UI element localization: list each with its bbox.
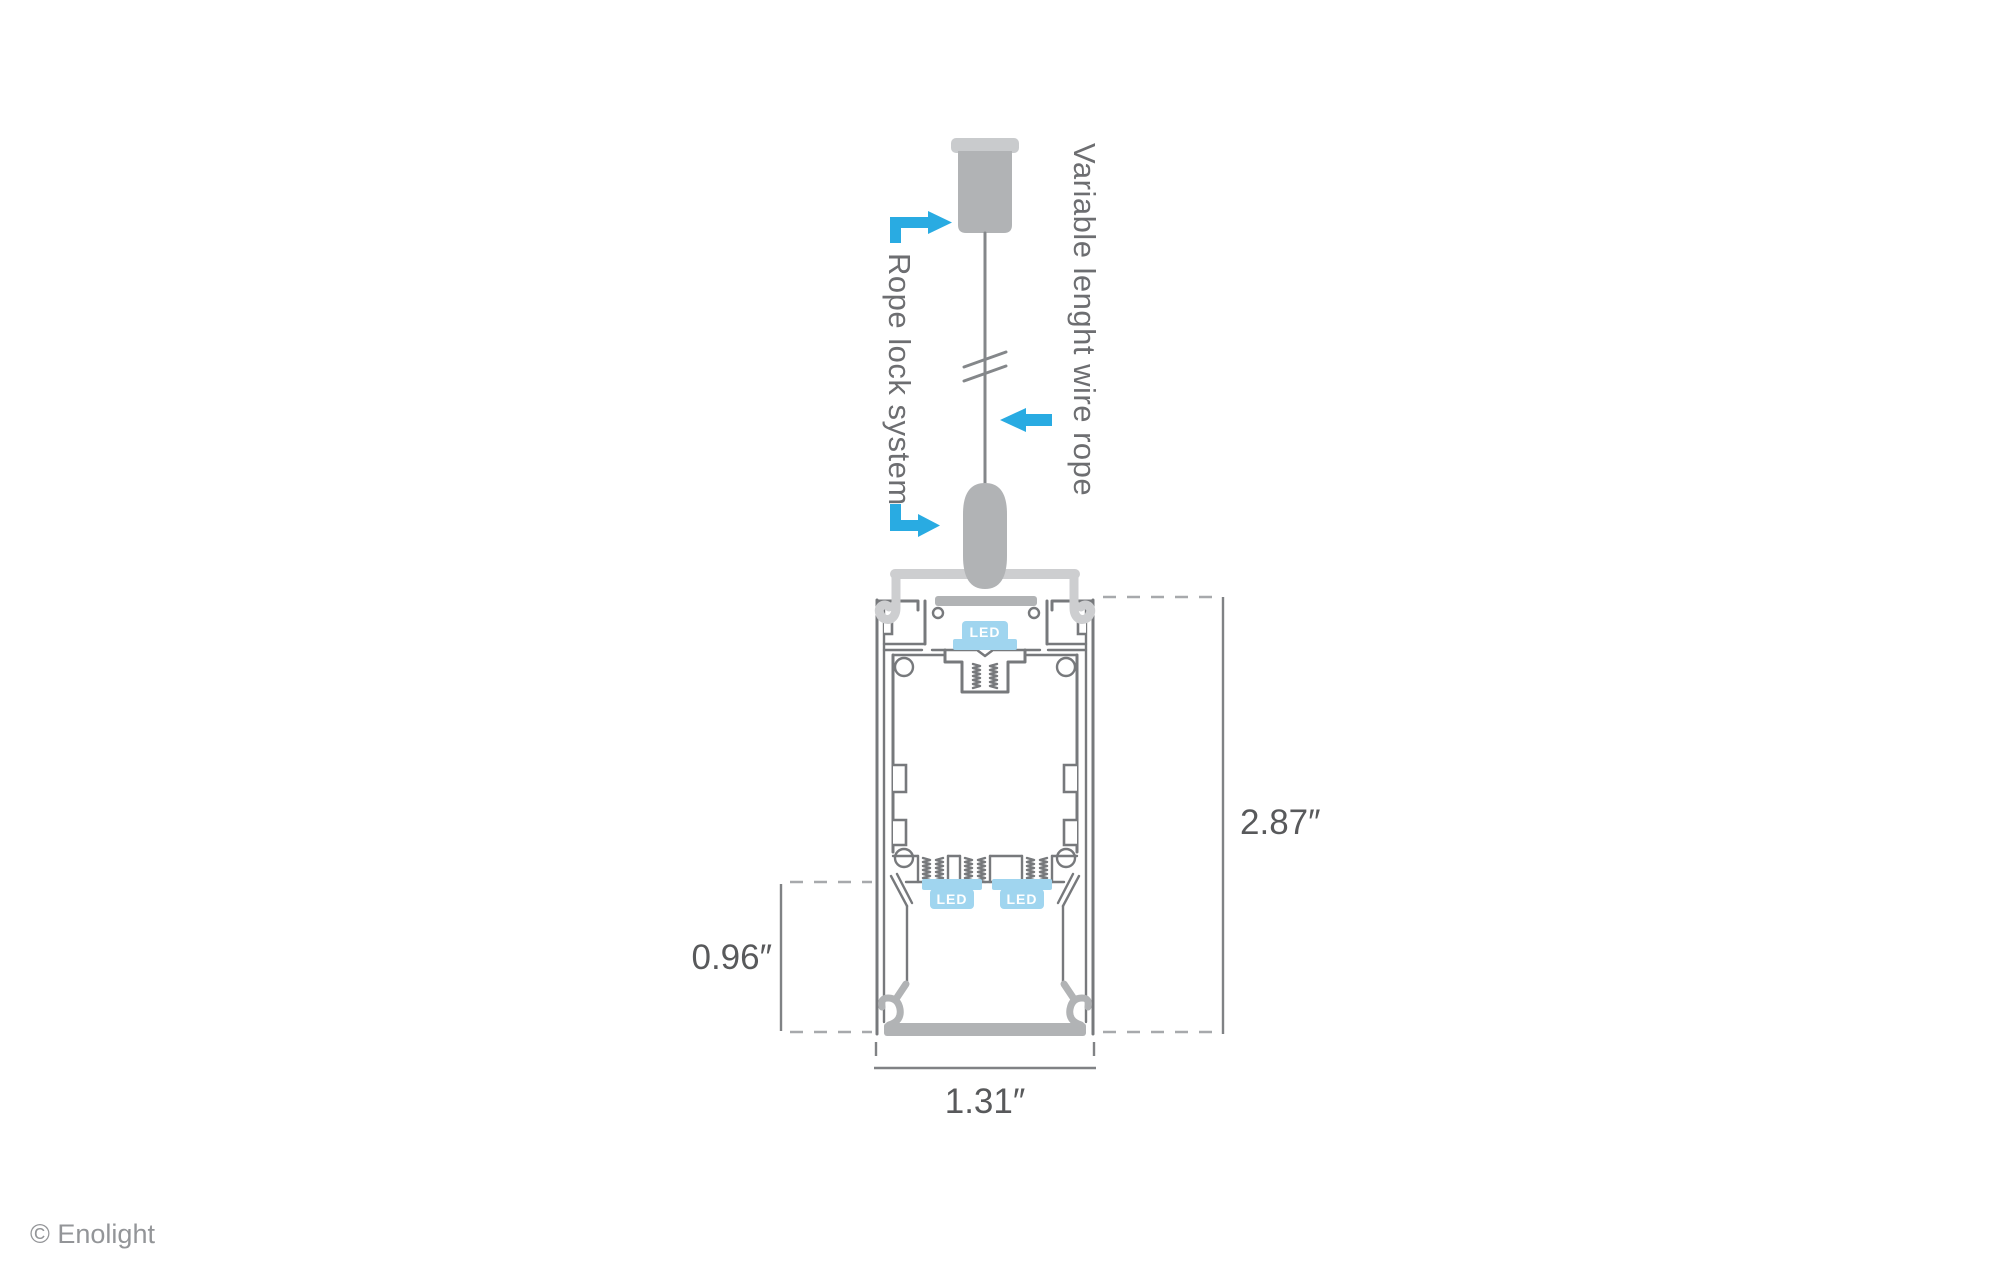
uplight-diffuser [935,596,1037,606]
led-top-label: LED [970,624,1001,640]
ceiling-mount-body [958,151,1012,233]
led-module-top: LED [953,621,1017,650]
top-cavity-floor-right [1047,644,1086,650]
chamber-notch-left-lower [893,820,906,845]
chamfer-right [1058,874,1079,906]
chamber-curl-bottom-left [895,849,913,867]
diagram-canvas: 2.87″ 0.96″ 1.31″ [0,0,2000,1266]
led-bottom-left-plate [922,879,982,890]
profile-cross-section: LED [877,596,1093,1036]
chamber-curl-top-left [895,658,913,676]
arrow-to-rope-lock [890,504,940,537]
rope-lock-gripper [963,483,1007,589]
wire-rope-label: Variable lenght wire rope [1067,143,1102,496]
top-cavity-floor-left [884,644,925,650]
chamfer-left [891,874,912,906]
led-bottom-right-label: LED [1007,891,1038,907]
overall-height-value: 2.87″ [1240,803,1321,842]
diffuser-curl-left [933,608,943,618]
dimension-lines: 2.87″ 0.96″ 1.31″ [691,597,1320,1121]
ceiling-mount [951,138,1019,233]
wire-rope [964,233,1006,483]
screw-channel-threads [923,858,1047,882]
screw-boss-threads [973,664,997,688]
chamber-curl-bottom-right [1057,849,1075,867]
lower-height-value: 0.96″ [691,938,772,977]
chamber-curl-top-right [1057,658,1075,676]
pendant-profile-diagram: 2.87″ 0.96″ 1.31″ [0,0,2000,1266]
led-bottom-right-plate [992,879,1052,890]
chamber-notch-right-lower [1064,820,1077,845]
diffuser-clip-right-finger [1064,984,1074,999]
bracket-hook-right [1074,576,1091,620]
diffuser-curl-right [1029,608,1039,618]
bottom-diffuser [884,1023,1086,1036]
arrow-to-ceiling-mount [890,211,952,243]
arrow-to-wire-rope [1000,408,1052,432]
led-module-bottom-right: LED [992,879,1052,909]
ceiling-mount-flange [951,138,1019,153]
width-value: 1.31″ [945,1082,1026,1121]
bracket-hook-left [879,576,896,620]
copyright-text: © Enolight [30,1219,155,1249]
chamber-notch-left-upper [893,765,906,792]
rope-lock-label: Rope lock system [882,253,917,506]
chamber-notch-right-upper [1064,765,1077,792]
diffuser-clip-left-finger [896,984,906,999]
led-bottom-left-label: LED [937,891,968,907]
led-module-bottom-left: LED [922,879,982,909]
